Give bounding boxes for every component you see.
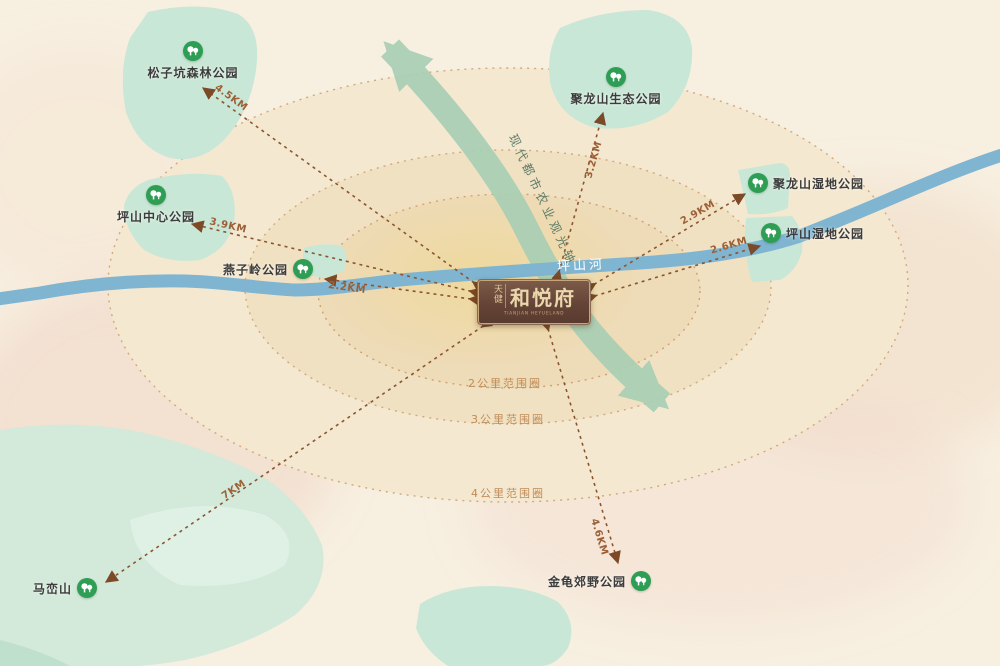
- park-marker-yanziling: 燕子岭公园: [163, 259, 313, 279]
- park-marker-songzikeng: 松子坑森林公园: [118, 41, 268, 81]
- park-marker-jingui: 金龟郊野公园: [548, 571, 651, 591]
- park-name: 马峦山: [33, 580, 72, 597]
- park-area-bottom-center: [416, 586, 571, 666]
- park-name: 金龟郊野公园: [548, 573, 626, 590]
- park-marker-julongshan-eco: 聚龙山生态公园: [541, 67, 691, 107]
- park-icon: [606, 67, 626, 87]
- project-logo: 天健 和悦府 TIANJIAN HEYUELAND: [477, 279, 591, 325]
- ring-label-2km: 2公里范围圈: [468, 375, 542, 391]
- park-icon: [77, 578, 97, 598]
- park-icon: [761, 223, 781, 243]
- park-icon: [293, 259, 313, 279]
- river-label: 坪山河: [557, 253, 606, 274]
- map-canvas: [0, 0, 1000, 666]
- project-subtitle: TIANJIAN HEYUELAND: [504, 311, 565, 316]
- ring-label-3km: 3公里范围圈: [471, 411, 545, 427]
- park-icon: [146, 185, 166, 205]
- park-icon: [748, 173, 768, 193]
- park-marker-pingshan-central: 坪山中心公园: [81, 185, 231, 225]
- park-name: 坪山湿地公园: [786, 225, 864, 242]
- park-name: 燕子岭公园: [223, 261, 288, 278]
- park-name: 坪山中心公园: [117, 208, 195, 225]
- park-name: 松子坑森林公园: [147, 64, 238, 81]
- park-name: 聚龙山湿地公园: [773, 175, 864, 192]
- park-marker-julongshan-wetland: 聚龙山湿地公园: [748, 173, 864, 193]
- project-name: 和悦府: [510, 282, 576, 311]
- park-icon: [183, 41, 203, 61]
- ring-label-4km: 4公里范围圈: [471, 485, 545, 501]
- park-icon: [631, 571, 651, 591]
- park-marker-pingshan-wetland: 坪山湿地公园: [761, 223, 864, 243]
- park-name: 聚龙山生态公园: [570, 90, 661, 107]
- project-brand: 天健: [492, 284, 506, 308]
- location-map: 2公里范围圈 3公里范围圈 4公里范围圈 坪山河 现代都市农业观光轴 4.5KM…: [0, 0, 1000, 666]
- park-marker-maluanshan: 马峦山: [5, 578, 97, 598]
